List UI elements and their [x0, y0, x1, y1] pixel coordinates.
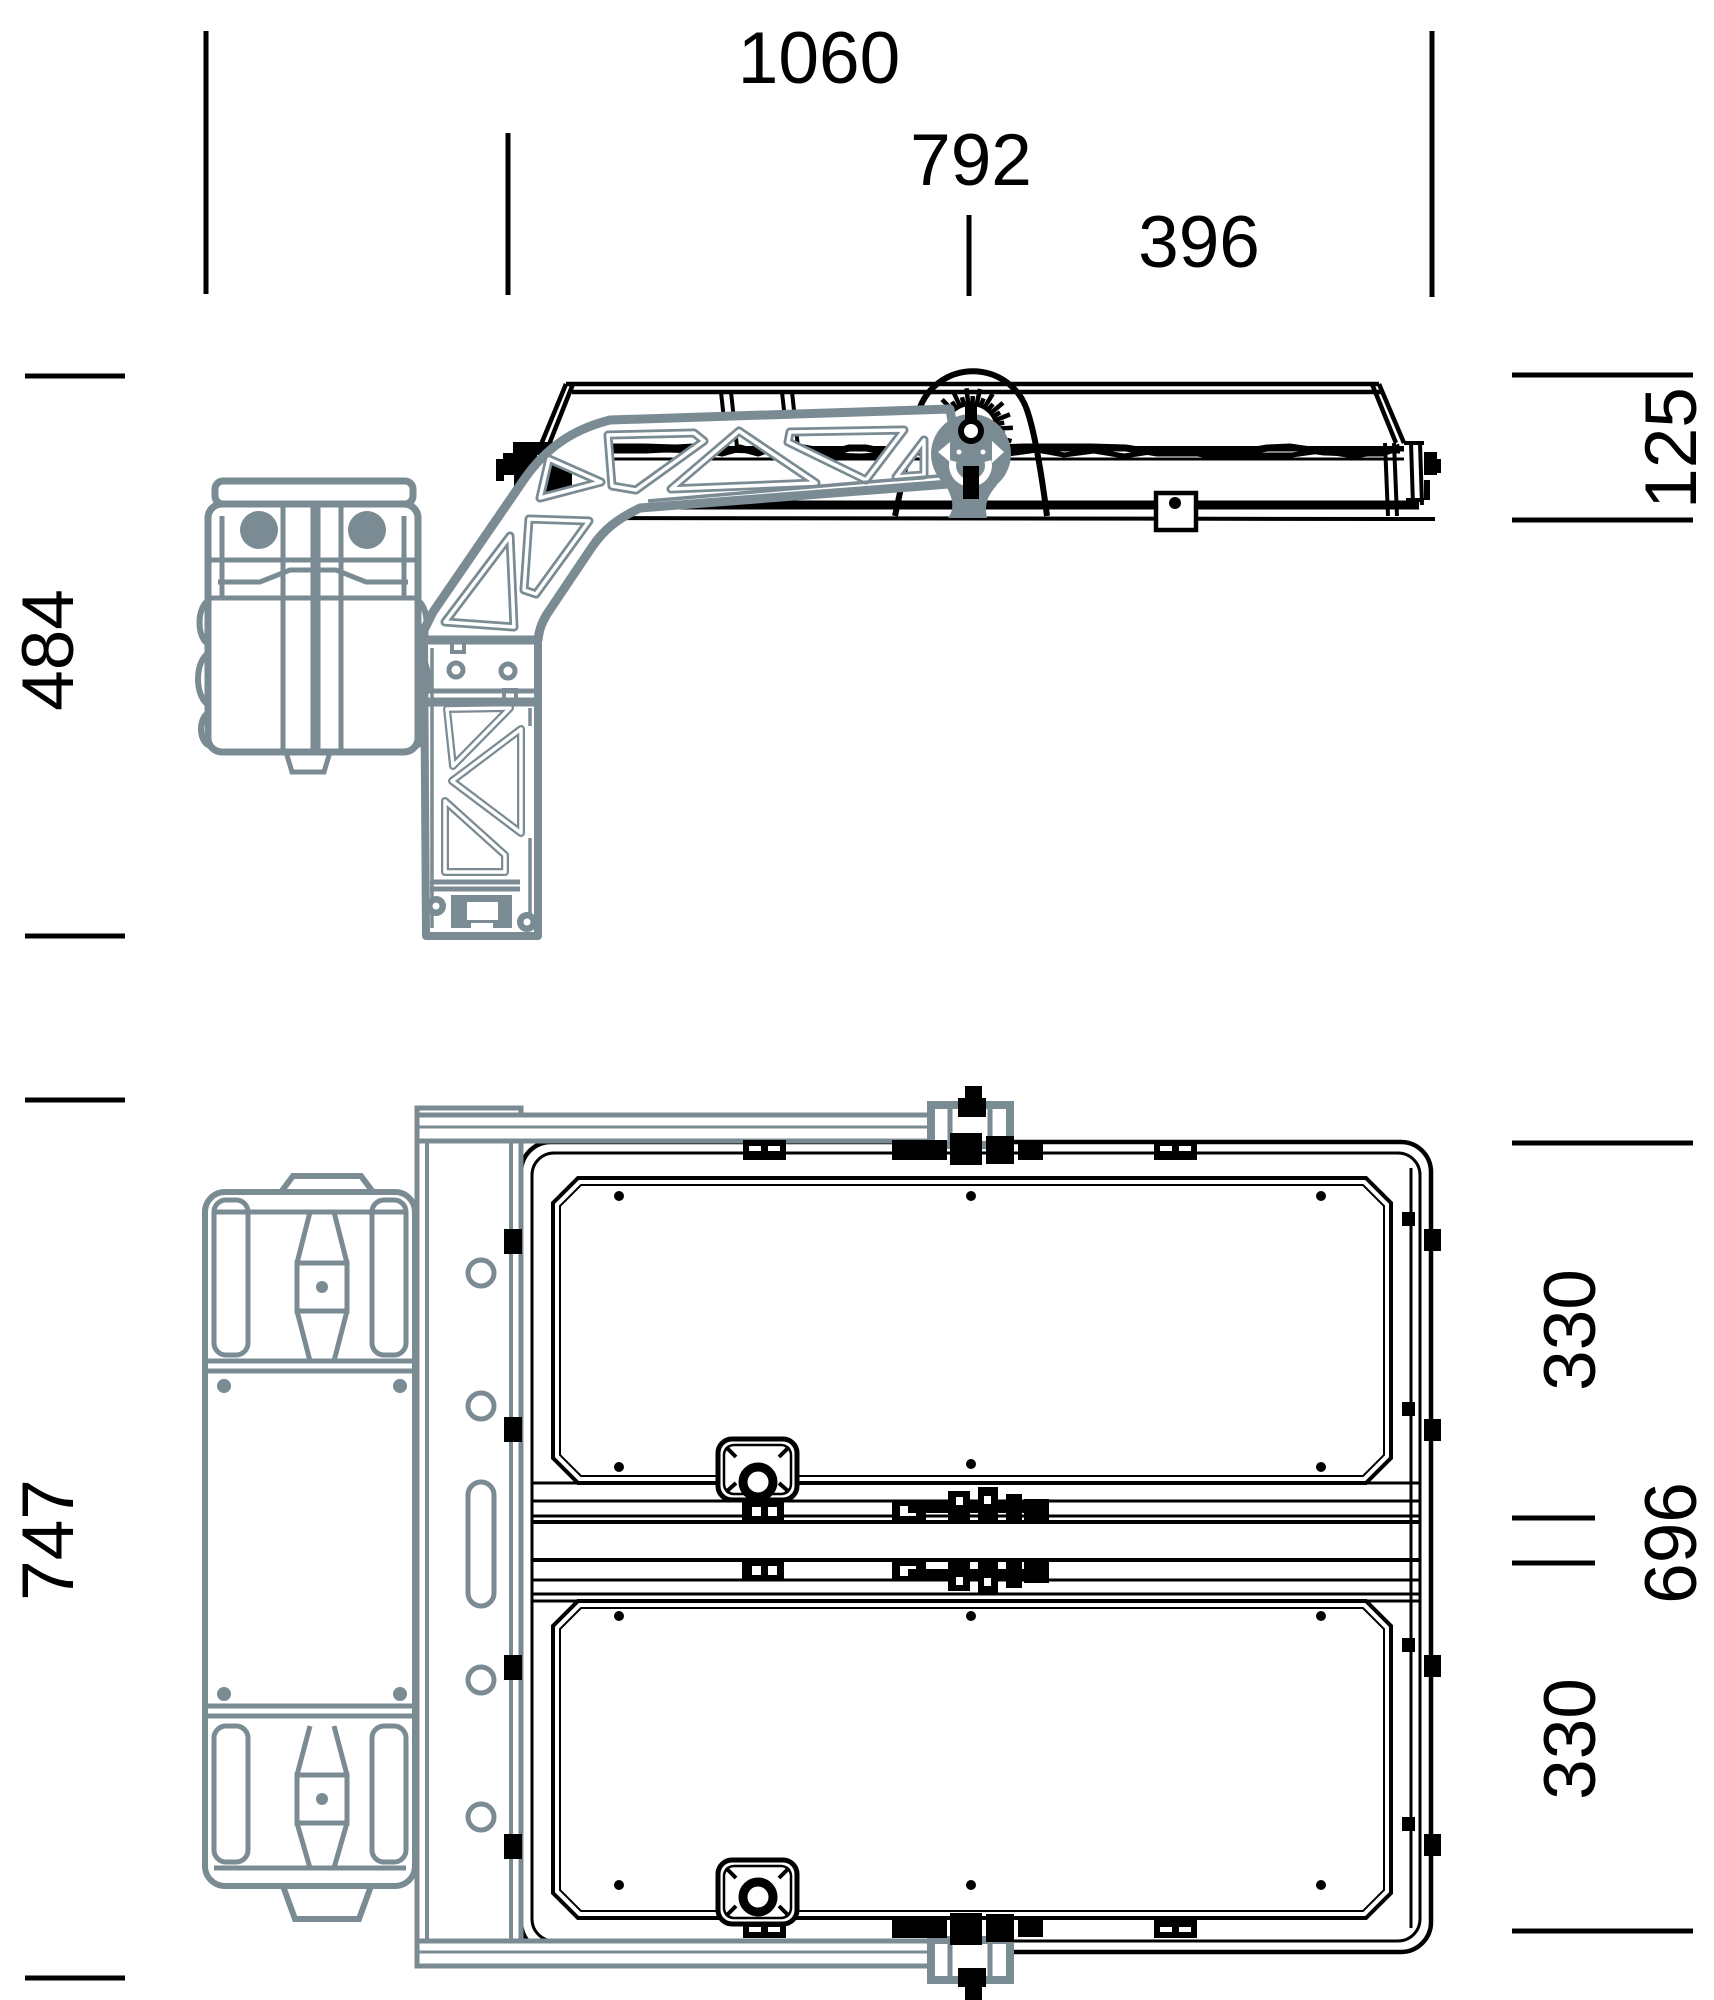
- svg-text:696: 696: [1631, 1482, 1712, 1604]
- svg-text:396: 396: [1138, 202, 1260, 283]
- svg-text:330: 330: [1530, 1269, 1611, 1391]
- svg-text:484: 484: [8, 589, 89, 711]
- svg-text:792: 792: [910, 120, 1032, 201]
- svg-text:747: 747: [8, 1479, 89, 1601]
- svg-text:330: 330: [1530, 1678, 1611, 1800]
- svg-text:1060: 1060: [738, 18, 900, 99]
- svg-text:125: 125: [1631, 387, 1712, 509]
